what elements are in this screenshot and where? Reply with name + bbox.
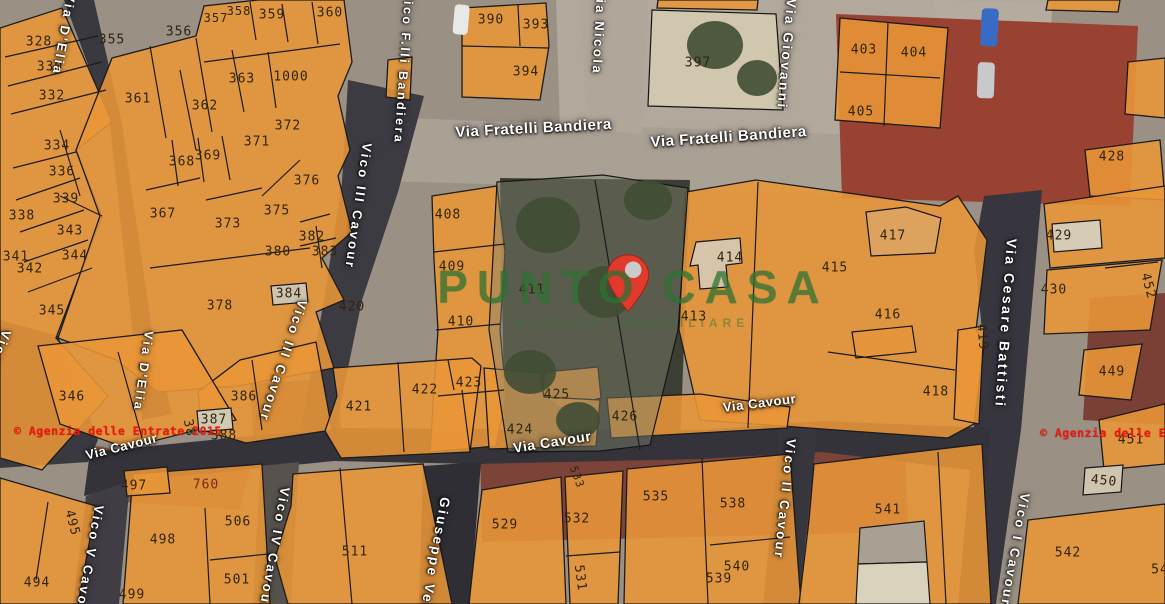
parcel-number-label: 376 [294, 174, 320, 189]
parcel-number-label: 390 [478, 13, 504, 28]
tree-canopy [737, 60, 777, 96]
copyright-agenzia-entrate-right: © Agenzia delle En [1040, 426, 1165, 440]
parcel-number-label: 397 [685, 56, 711, 71]
cadastral-parcel [469, 477, 566, 604]
parcel-number-label: 404 [901, 46, 927, 61]
parcel-number-label: 409 [439, 260, 465, 275]
parcel-number-label: 494 [24, 576, 50, 591]
parcel-number-label: 410 [448, 315, 474, 330]
parcel-number-label: 430 [1041, 283, 1067, 298]
parcel-number-label: 328 [26, 35, 52, 50]
parcel-number-label: 506 [225, 515, 251, 530]
parcel-number-label: 511 [342, 545, 368, 560]
parcel-number-label: 532 [564, 512, 590, 527]
parcel-number-label: 1000 [273, 70, 308, 85]
cadastral-parcel [1046, 0, 1120, 12]
parcel-number-label: 428 [1099, 150, 1125, 165]
parcel-number-label: 393 [523, 18, 549, 33]
parcel-number-label: 449 [1099, 365, 1125, 380]
tree-canopy [624, 180, 672, 220]
parcel-number-label: 359 [259, 8, 285, 23]
parcel-number-label: 538 [720, 497, 746, 512]
parcel-number-label: 382 [299, 230, 325, 245]
parcel-number-label: 529 [492, 518, 518, 533]
parcel-number-label: 54 [1151, 563, 1165, 578]
parked-car [980, 8, 999, 47]
cadastral-parcel-special [852, 326, 916, 358]
parcel-number-label: 345 [39, 304, 65, 319]
parcel-number-label: 371 [244, 135, 270, 150]
parcel-number-label: 332 [39, 89, 65, 104]
parcel-number-label: 339 [53, 192, 79, 207]
parcel-number-label: 540 [724, 560, 750, 575]
parcel-number-label: 423 [456, 376, 482, 391]
parcel-number-label: 373 [215, 217, 241, 232]
parcel-number-label: 386 [231, 390, 257, 405]
parcel-number-label: 356 [166, 25, 192, 40]
parcel-number-label: 760 [193, 478, 219, 493]
parcel-number-label: 408 [435, 208, 461, 223]
parcel-number-label: 411 [519, 283, 545, 298]
cadastral-parcel [1125, 58, 1165, 118]
location-marker-pin[interactable] [605, 252, 651, 314]
parcel-number-label: 369 [195, 149, 221, 164]
parcel-number-label: 422 [412, 383, 438, 398]
cadastral-parcel-special [856, 562, 930, 604]
parcel-number-label: 375 [264, 204, 290, 219]
parked-car [977, 62, 995, 99]
cadastral-parcel [1018, 504, 1165, 604]
parcel-number-label: 362 [192, 99, 218, 114]
parcel-number-label: 378 [207, 299, 233, 314]
parcel-number-label: 343 [57, 224, 83, 239]
parcel-number-label: 368 [169, 155, 195, 170]
parcel-number-label: 394 [513, 65, 539, 80]
parcel-number-label: 497 [121, 479, 147, 494]
parcel-number-label: 342 [17, 262, 43, 277]
parcel-number-label: 414 [717, 251, 743, 266]
parcel-number-label: 334 [44, 139, 70, 154]
cadastral-parcel [657, 0, 758, 10]
parcel-number-label: 380 [265, 245, 291, 260]
parcel-number-label: 344 [62, 249, 88, 264]
parcel-number-label: 541 [875, 503, 901, 518]
map-canvas[interactable]: 3283303323343363383393433413443423453463… [0, 0, 1165, 604]
parcel-number-label: 367 [150, 207, 176, 222]
parcel-number-label: 383 [312, 245, 338, 260]
parcel-number-label: 361 [125, 92, 151, 107]
parcel-number-label: 358 [227, 4, 252, 18]
parcel-number-label: 415 [822, 261, 848, 276]
parcel-number-label: 418 [923, 385, 949, 400]
parcel-number-label: 372 [275, 119, 301, 134]
parcel-number-label: 424 [507, 423, 533, 438]
parcel-number-label: 405 [848, 105, 874, 120]
parcel-number-label: 542 [1055, 546, 1081, 561]
copyright-agenzia-entrate-left: © Agenzia delle Entrate 2015 [14, 424, 222, 438]
parcel-number-label: 346 [59, 390, 85, 405]
parked-car [452, 4, 470, 35]
parcel-number-label: 357 [204, 11, 229, 25]
parcel-number-label: 420 [339, 300, 365, 315]
parcel-number-label: 498 [150, 533, 176, 548]
parcel-number-label: 413 [681, 310, 707, 325]
parcel-number-label: 421 [346, 400, 372, 415]
parcel-number-label: 499 [119, 588, 145, 603]
parcel-number-label: 360 [317, 6, 343, 21]
parcel-number-label: 417 [880, 229, 906, 244]
parcel-number-label: 425 [544, 388, 570, 403]
parcel-number-label: 419 [973, 323, 990, 351]
parcel-number-label: 450 [1090, 472, 1118, 490]
parcel-number-label: 535 [643, 490, 669, 505]
parcel-number-label: 355 [99, 33, 125, 48]
parcel-number-label: 416 [875, 308, 901, 323]
parcel-number-label: 336 [49, 165, 75, 180]
parcel-number-label: 426 [612, 410, 638, 425]
tree-canopy [516, 197, 580, 253]
parcel-number-label: 363 [229, 72, 255, 87]
parcel-number-label: 338 [9, 209, 35, 224]
parcel-number-label: 501 [224, 573, 250, 588]
cadastral-parcel-special [858, 521, 927, 564]
parcel-number-label: 403 [851, 43, 877, 58]
parcel-number-label: 429 [1046, 229, 1072, 244]
